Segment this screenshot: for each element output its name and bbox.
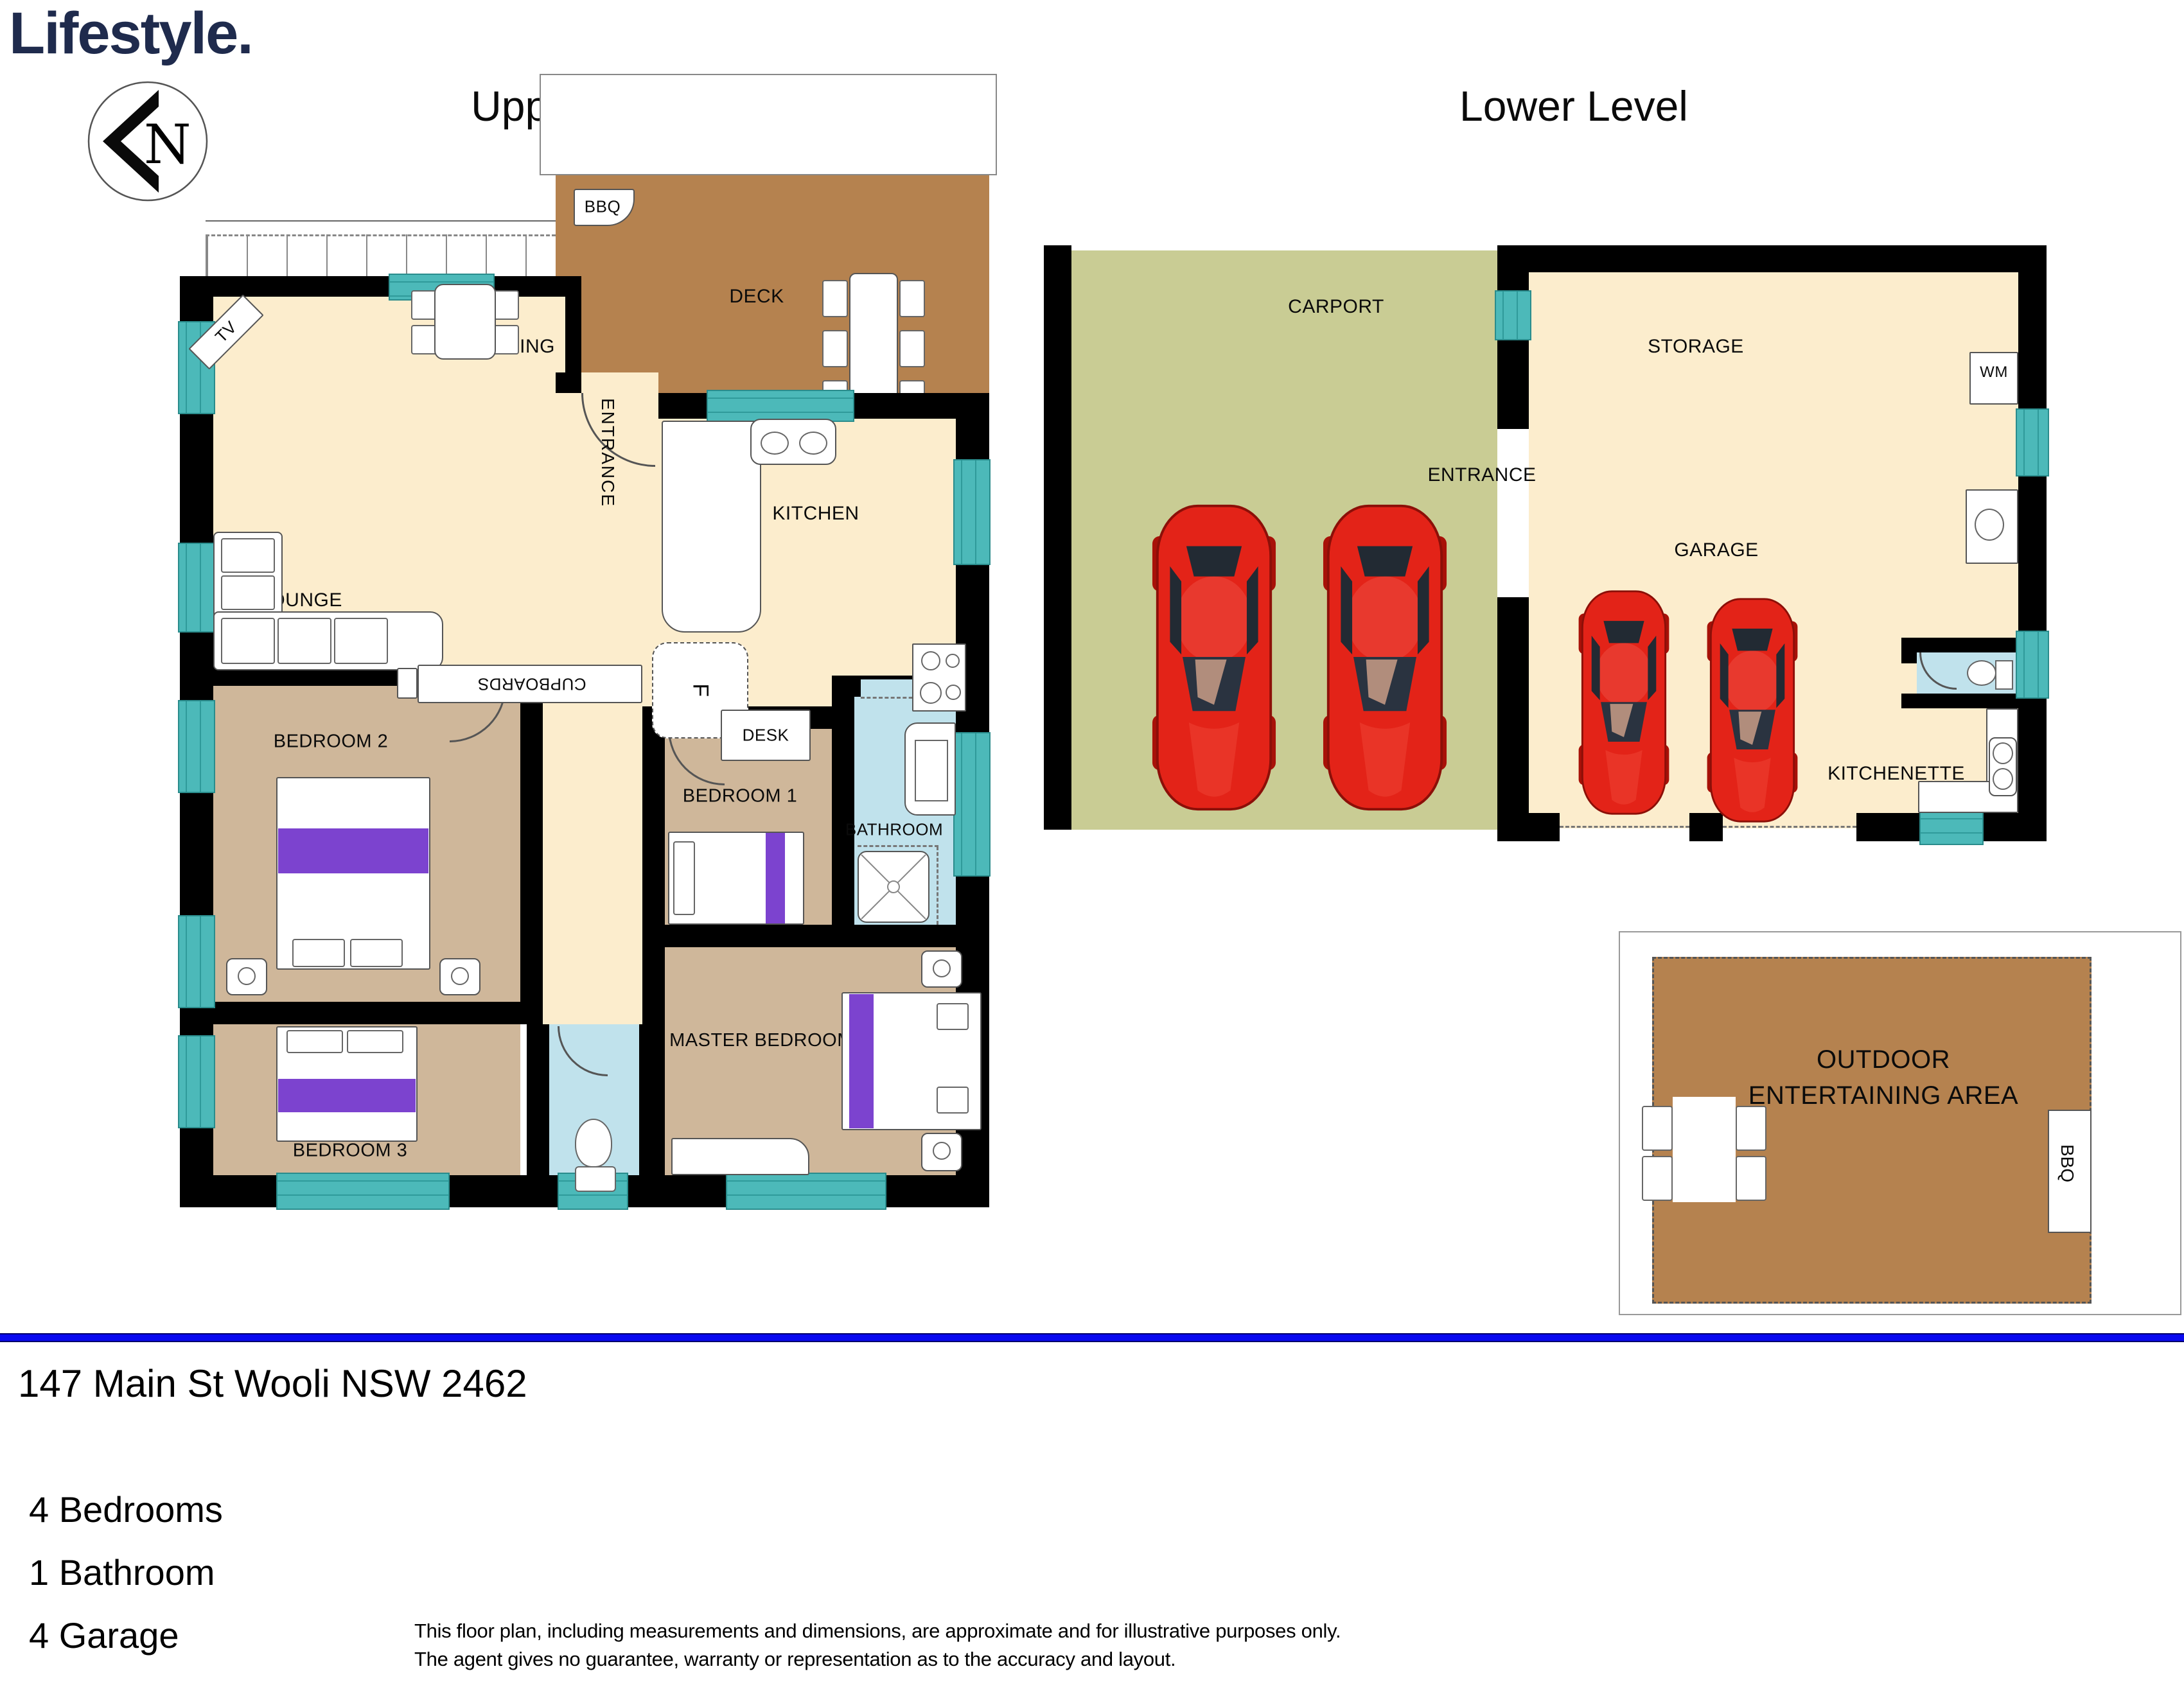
kitchenette-label: KITCHENETTE	[1827, 763, 1965, 785]
sofa-cushion	[277, 618, 331, 664]
outdoor-bbq-label: BBQ	[2057, 1144, 2077, 1182]
sofa-cushion	[221, 538, 275, 573]
wall	[2018, 245, 2047, 841]
toilet	[575, 1166, 616, 1192]
compass-icon: N	[85, 78, 211, 204]
window	[178, 915, 215, 1008]
wall	[1513, 245, 2047, 272]
lower-level-title: Lower Level	[1459, 82, 1688, 130]
wall	[1984, 813, 2047, 841]
disclaimer-line-1: This floor plan, including measurements …	[414, 1620, 1341, 1643]
wall	[1901, 694, 2018, 708]
sink-bowl	[1993, 768, 2013, 790]
window	[276, 1173, 450, 1210]
wall	[1901, 638, 1917, 663]
lamp	[933, 959, 951, 977]
bedroom2-label: BEDROOM 2	[274, 731, 389, 753]
deck-chair	[899, 280, 925, 317]
dining-table	[434, 284, 496, 360]
pillow	[937, 1003, 969, 1030]
sink-bowl	[1993, 742, 2013, 764]
entrance-label: ENTRANCE	[597, 398, 618, 572]
deck-chair	[822, 280, 848, 317]
window-door	[1919, 810, 1984, 845]
outdoor-area-label: OUTDOOR ENTERTAINING AREA	[1742, 1042, 2025, 1114]
sink-bowl	[761, 432, 789, 455]
outdoor-table	[1673, 1097, 1736, 1202]
fridge-label: F	[688, 683, 713, 697]
window	[178, 543, 215, 633]
storage-label: STORAGE	[1648, 336, 1744, 358]
kitchen-label: KITCHEN	[772, 503, 859, 525]
wall	[1497, 597, 1529, 830]
disclaimer-line-2: The agent gives no guarantee, warranty o…	[414, 1648, 1176, 1671]
wall	[1901, 638, 2018, 652]
bathroom-label: BATHROOM	[845, 820, 943, 840]
car-top-icon	[1322, 500, 1448, 816]
pillow	[673, 841, 695, 915]
wall	[180, 1002, 520, 1024]
shower-screen	[937, 846, 938, 925]
car-top-icon	[1151, 500, 1277, 816]
wall	[556, 372, 581, 393]
divider-line	[0, 1333, 2184, 1342]
window	[953, 732, 991, 877]
window	[178, 1035, 215, 1128]
tub-bowl	[1975, 509, 2004, 541]
wall	[527, 1024, 549, 1207]
wall	[520, 665, 543, 1024]
stove-burner	[920, 682, 942, 704]
stairs	[206, 234, 556, 276]
stove-burner	[946, 685, 961, 700]
deck-label: DECK	[729, 286, 784, 308]
vanity-sink	[915, 740, 948, 801]
lamp	[933, 1142, 951, 1160]
bbq-label: BBQ	[585, 197, 621, 217]
bed-foot	[350, 939, 403, 967]
window	[178, 700, 215, 793]
deck-chair	[822, 330, 848, 367]
wall	[832, 697, 854, 925]
lamp	[451, 967, 469, 985]
wall	[1044, 245, 1071, 830]
kitchen-counter	[662, 421, 761, 633]
stair-landing	[206, 220, 556, 234]
deck-chair	[899, 330, 925, 367]
address: 147 Main St Wooli NSW 2462	[18, 1361, 527, 1406]
stove-burner	[946, 654, 960, 668]
lower-entrance-label: ENTRANCE	[1427, 464, 1536, 486]
brand-logo: Lifestyle.	[9, 0, 252, 67]
sofa-cushion	[334, 618, 388, 664]
garage-door-opening	[1560, 826, 1689, 828]
sofa-cushion	[221, 618, 275, 664]
cupboards-label: CUPBOARDS	[477, 674, 586, 694]
shower-x	[858, 851, 929, 923]
outdoor-chair	[1642, 1156, 1673, 1201]
window	[2016, 408, 2049, 476]
bedroom3-label: BEDROOM 3	[293, 1141, 408, 1162]
pillow	[937, 1087, 969, 1114]
bed-runner	[849, 994, 874, 1128]
svg-text:N: N	[144, 113, 191, 176]
feature-bedrooms: 4 Bedrooms	[29, 1489, 223, 1530]
garage-door-opening	[1723, 826, 1856, 828]
window	[2016, 631, 2049, 699]
pillow	[286, 1030, 343, 1053]
lamp	[238, 967, 256, 985]
toilet-bowl	[1967, 660, 1996, 686]
window	[707, 390, 854, 422]
bed-runner	[766, 833, 785, 923]
wm-label: WM	[1980, 363, 2008, 381]
robe	[671, 1138, 809, 1175]
wall	[1856, 813, 1919, 841]
toilet-bowl	[575, 1119, 612, 1167]
toilet	[1995, 660, 2013, 690]
sofa-cushion	[221, 575, 275, 610]
cupboards-unit	[397, 668, 418, 699]
wall	[642, 925, 989, 947]
garage-label: GARAGE	[1674, 539, 1758, 561]
bed-runner	[278, 828, 428, 873]
feature-bathroom: 1 Bathroom	[29, 1552, 215, 1593]
desk-label: DESK	[743, 726, 789, 746]
master-bedroom-label: MASTER BEDROOM	[665, 1027, 858, 1054]
window	[1495, 290, 1531, 340]
bed-runner	[278, 1079, 416, 1112]
outdoor-chair	[1642, 1106, 1673, 1151]
bedroom1-label: BEDROOM 1	[683, 786, 798, 807]
window	[726, 1173, 886, 1210]
stove	[912, 643, 966, 712]
pillow	[347, 1030, 403, 1053]
carport-label: CARPORT	[1288, 296, 1384, 318]
shower-screen	[858, 845, 938, 847]
car-top-icon	[1575, 590, 1673, 816]
bed-foot	[292, 939, 345, 967]
sink-bowl	[799, 432, 827, 455]
window	[953, 459, 991, 565]
feature-garage: 4 Garage	[29, 1614, 179, 1656]
floor-plan-page: Lifestyle. N Upper level Lower Level BBQ…	[0, 0, 2184, 1687]
outdoor-chair	[1736, 1156, 1766, 1201]
deck-boundary	[540, 74, 997, 175]
wall	[1497, 813, 1560, 841]
wall	[180, 276, 581, 297]
bathroom-opening	[861, 679, 919, 699]
car-top-icon	[1704, 597, 1801, 823]
stove-burner	[921, 651, 940, 670]
